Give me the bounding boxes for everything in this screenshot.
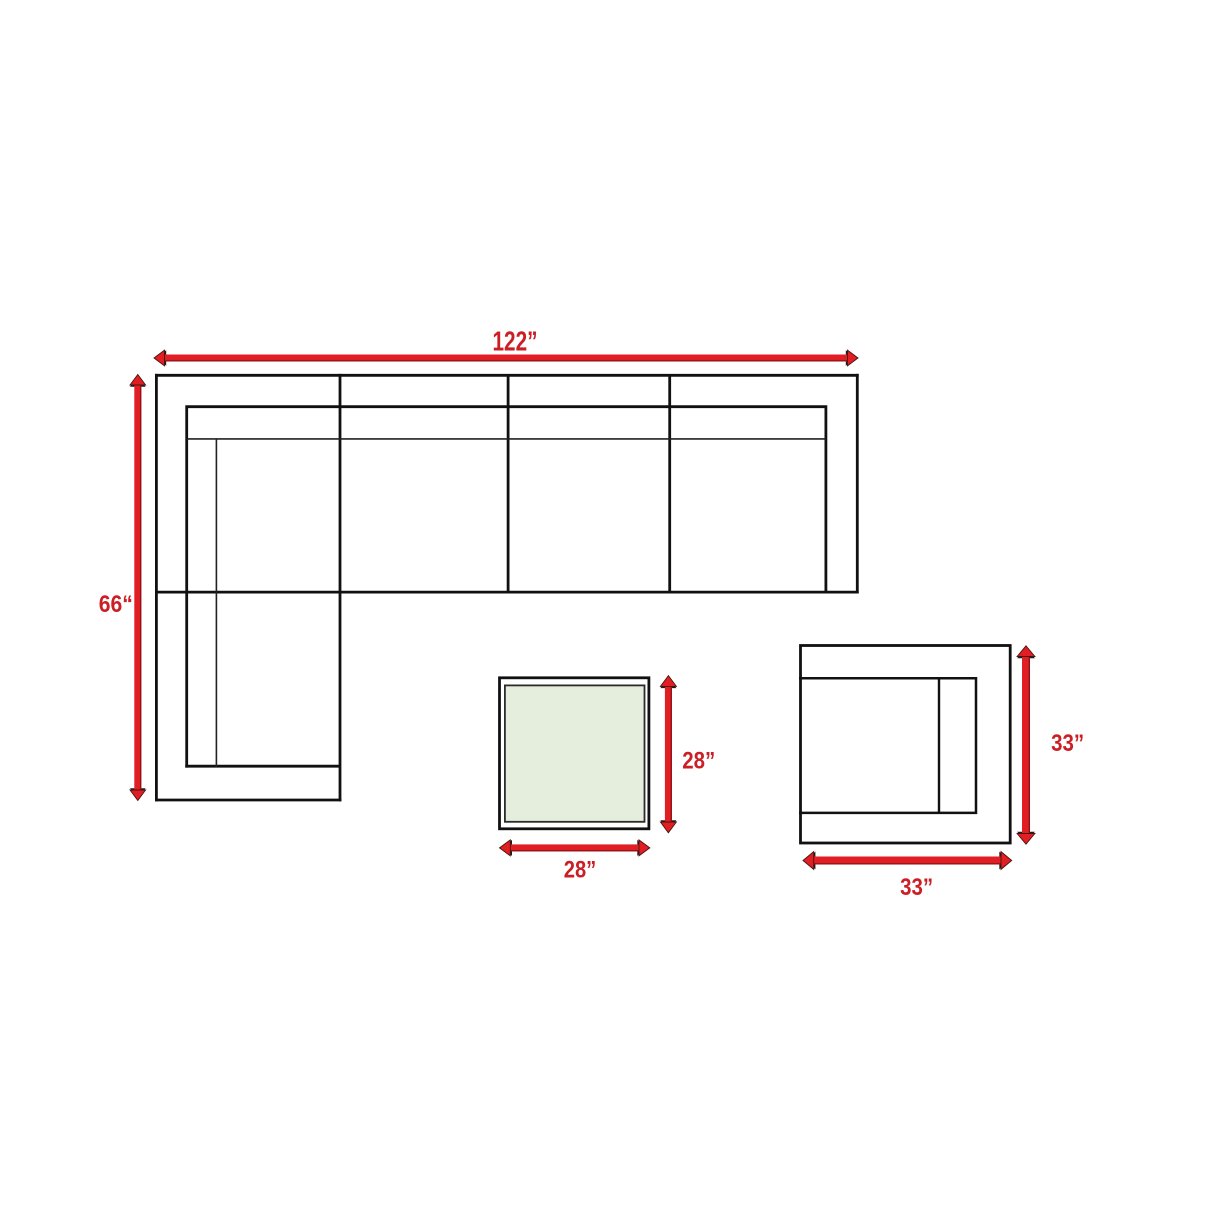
svg-text:28”: 28” [564,856,597,883]
svg-text:122”: 122” [493,326,538,357]
svg-text:33”: 33” [1051,730,1084,757]
svg-text:66“: 66“ [99,591,133,618]
svg-text:28”: 28” [682,747,715,774]
svg-text:33”: 33” [900,874,933,901]
